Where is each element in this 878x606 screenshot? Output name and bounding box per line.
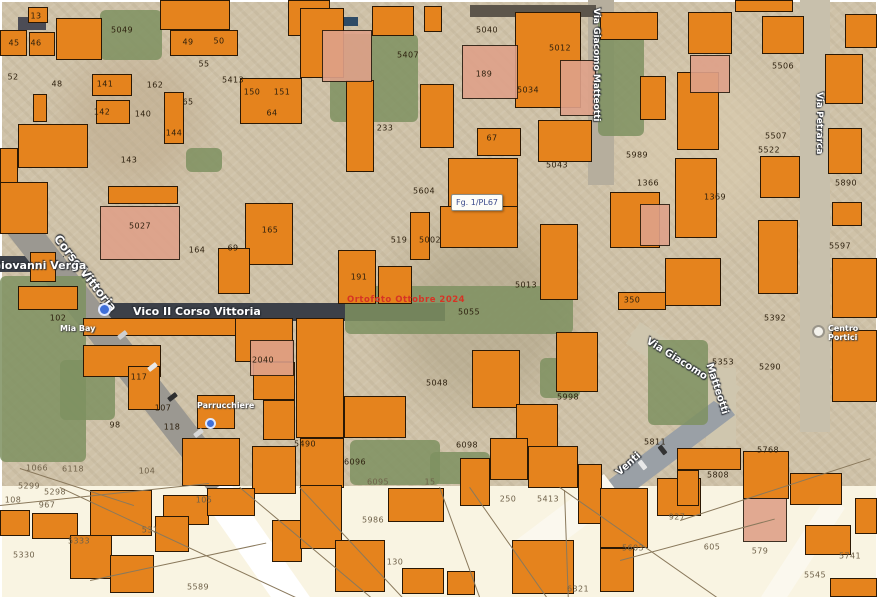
parcel-number: 52 xyxy=(8,73,19,82)
parcel-number: 519 xyxy=(391,236,407,245)
street-name-label: Via Giacomo Matteotti xyxy=(591,8,601,121)
building-parcel-secondary[interactable] xyxy=(100,206,180,260)
parcel-number: 64 xyxy=(267,109,278,118)
parcel-number: 105 xyxy=(196,496,212,505)
building-parcel[interactable] xyxy=(372,6,414,36)
parcel-number: 142 xyxy=(94,108,110,117)
parcel-number: 5506 xyxy=(772,62,794,71)
parcel-number: 141 xyxy=(97,80,113,89)
building-parcel[interactable] xyxy=(0,510,30,536)
vegetation-patch xyxy=(100,10,162,60)
building-parcel[interactable] xyxy=(512,540,574,594)
parcel-number: 144 xyxy=(166,129,182,138)
building-parcel[interactable] xyxy=(420,84,454,148)
parcel-number: 6118 xyxy=(62,465,84,474)
building-parcel[interactable] xyxy=(540,224,578,300)
parcel-number: 130 xyxy=(387,558,403,567)
parcel-number: 5392 xyxy=(764,314,786,323)
parcel-number: 350 xyxy=(624,296,640,305)
building-parcel[interactable] xyxy=(424,6,442,32)
building-parcel[interactable] xyxy=(825,54,863,104)
building-parcel[interactable] xyxy=(160,0,230,30)
parcel-number: 5012 xyxy=(549,44,571,53)
building-parcel[interactable] xyxy=(832,202,862,226)
parcel-number: 5490 xyxy=(294,440,316,449)
parcel-number: 5055 xyxy=(458,308,480,317)
parcel-number: 1369 xyxy=(704,193,726,202)
parcel-number: 15 xyxy=(425,478,436,487)
parcel-number: 531 xyxy=(142,526,158,535)
building-parcel[interactable] xyxy=(344,396,406,438)
parcel-number: 117 xyxy=(131,373,147,382)
parcel-number: 5597 xyxy=(829,242,851,251)
building-parcel[interactable] xyxy=(263,400,295,440)
parcel-number: 191 xyxy=(351,273,367,282)
parcel-number: 65 xyxy=(183,98,194,107)
ortofoto-watermark: Ortofoto Ottobre 2024 xyxy=(347,295,465,305)
parcel-number: 5027 xyxy=(129,222,151,231)
parcel-number: 189 xyxy=(476,70,492,79)
building-parcel[interactable] xyxy=(182,438,240,486)
parcel-number: 162 xyxy=(147,81,163,90)
parcel-number: 6098 xyxy=(456,441,478,450)
cadastral-map-viewer: 1345465250494950555413150151644814116214… xyxy=(0,0,878,606)
building-parcel[interactable] xyxy=(828,128,862,174)
building-parcel[interactable] xyxy=(538,120,592,162)
building-parcel[interactable] xyxy=(832,258,877,318)
building-parcel[interactable] xyxy=(556,332,598,392)
parcel-number: 6096 xyxy=(344,458,366,467)
parcel-number: 102 xyxy=(50,314,66,323)
parcel-number: 5522 xyxy=(758,146,780,155)
parcel-number: 48 xyxy=(52,80,63,89)
parcel-number: 5589 xyxy=(187,583,209,592)
building-parcel[interactable] xyxy=(440,206,518,248)
parcel-number: 67 xyxy=(487,134,498,143)
parcel-number: 5049 xyxy=(111,26,133,35)
parcel-number: 98 xyxy=(110,421,121,430)
parcel-number: 5890 xyxy=(835,179,857,188)
parcel-number: 5604 xyxy=(413,187,435,196)
parcel-number: 165 xyxy=(262,226,278,235)
parcel-number: 140 xyxy=(135,110,151,119)
parcel-number: 5002 xyxy=(419,236,441,245)
parcel-number: 5043 xyxy=(546,161,568,170)
parcel-number: 5989 xyxy=(626,151,648,160)
parcel-number: 2040 xyxy=(252,356,274,365)
map-marker-icon[interactable] xyxy=(98,303,111,316)
parcel-number: 150 xyxy=(244,88,260,97)
building-parcel[interactable] xyxy=(600,488,648,548)
building-parcel[interactable] xyxy=(18,124,88,168)
parcel-number: 69 xyxy=(228,244,239,253)
parcel-number: 5298 xyxy=(44,488,66,497)
parcel-number: 6321 xyxy=(567,585,589,594)
parcel-number: 50 xyxy=(214,37,225,46)
sheet-reference-label: Fg. 1/PL67 xyxy=(451,194,503,211)
building-parcel[interactable] xyxy=(207,488,255,516)
building-parcel[interactable] xyxy=(758,220,798,294)
parcel-number: 5013 xyxy=(515,281,537,290)
parcel-number: 151 xyxy=(274,88,290,97)
parcel-number: 5998 xyxy=(557,393,579,402)
parcel-number: 233 xyxy=(377,124,393,133)
building-parcel[interactable] xyxy=(460,458,490,506)
parcel-number: 108 xyxy=(5,496,21,505)
vegetation-patch xyxy=(186,148,222,172)
parcel-number: 5407 xyxy=(397,51,419,60)
parcel-number: 5040 xyxy=(476,26,498,35)
building-parcel[interactable] xyxy=(346,80,374,172)
building-parcel[interactable] xyxy=(472,350,520,408)
poi-label[interactable]: Mia Bay xyxy=(60,324,95,333)
building-parcel[interactable] xyxy=(108,186,178,204)
building-parcel[interactable] xyxy=(665,258,721,306)
parcel-number: 6095 xyxy=(367,478,389,487)
building-parcel[interactable] xyxy=(477,128,521,156)
building-parcel[interactable] xyxy=(18,286,78,310)
building-parcel[interactable] xyxy=(735,0,793,12)
building-parcel[interactable] xyxy=(388,488,444,522)
parcel-number: 13 xyxy=(31,12,42,21)
building-parcel[interactable] xyxy=(677,470,699,506)
parcel-number: 107 xyxy=(155,404,171,413)
parcel-number: 164 xyxy=(189,246,205,255)
parcel-number: 5333 xyxy=(68,537,90,546)
parcel-number: 5034 xyxy=(517,86,539,95)
building-parcel[interactable] xyxy=(640,76,666,120)
parcel-number: 118 xyxy=(164,423,180,432)
poi-circle-label: CentroPortici xyxy=(828,324,858,342)
parcel-number: 5603 xyxy=(622,544,644,553)
building-parcel[interactable] xyxy=(296,318,344,438)
parcel-number: 143 xyxy=(121,156,137,165)
building-parcel[interactable] xyxy=(790,473,842,505)
building-parcel[interactable] xyxy=(402,568,444,594)
building-parcel[interactable] xyxy=(677,448,741,470)
parcel-number: 5413 xyxy=(537,495,559,504)
building-parcel-secondary[interactable] xyxy=(322,30,372,82)
building-parcel[interactable] xyxy=(83,318,251,336)
parcel-number: 927 xyxy=(669,513,685,522)
building-parcel[interactable] xyxy=(528,446,578,488)
parcel-number: 49 xyxy=(183,38,194,47)
parcel-number: 5330 xyxy=(13,551,35,560)
parcel-number: 5986 xyxy=(362,516,384,525)
building-parcel[interactable] xyxy=(252,446,296,494)
building-parcel[interactable] xyxy=(335,540,385,592)
building-parcel[interactable] xyxy=(855,498,877,534)
building-parcel[interactable] xyxy=(688,12,732,54)
street-name-label: Vico II Corso Vittoria xyxy=(133,305,261,318)
building-parcel[interactable] xyxy=(762,16,804,54)
parcel-number: 5290 xyxy=(759,363,781,372)
parcel-number: 1366 xyxy=(637,179,659,188)
parcel-number: 5048 xyxy=(426,379,448,388)
building-parcel-secondary[interactable] xyxy=(640,204,670,246)
parcel-number: 104 xyxy=(139,467,155,476)
building-parcel[interactable] xyxy=(0,182,48,234)
building-parcel-secondary[interactable] xyxy=(690,55,730,93)
parcel-number: 5741 xyxy=(839,552,861,561)
parcel-number: 5811 xyxy=(644,438,666,447)
map-marker-icon[interactable] xyxy=(205,418,216,429)
parcel-number: 55 xyxy=(199,60,210,69)
building-parcel[interactable] xyxy=(760,156,800,198)
parcel-number: 1066 xyxy=(26,464,48,473)
building-parcel[interactable] xyxy=(490,438,528,480)
building-parcel[interactable] xyxy=(218,248,250,294)
building-parcel[interactable] xyxy=(845,14,877,48)
building-parcel[interactable] xyxy=(56,18,102,60)
building-parcel[interactable] xyxy=(600,548,634,592)
parcel-number: 5545 xyxy=(804,571,826,580)
sheet-reference-text: Fg. 1/PL67 xyxy=(456,198,498,207)
street-name-label: Giovanni Verga xyxy=(0,259,86,272)
street-name-label: Via Petrarca xyxy=(814,92,824,154)
parcel-number: 5299 xyxy=(18,482,40,491)
parcel-number: 250 xyxy=(500,495,516,504)
parcel-number: 605 xyxy=(704,543,720,552)
frame-bottom xyxy=(0,597,878,606)
poi-circle-icon[interactable] xyxy=(812,325,825,338)
parcel-number: 5413 xyxy=(222,76,244,85)
parcel-number: 5768 xyxy=(757,446,779,455)
parcel-number: 579 xyxy=(752,547,768,556)
parcel-number: 5507 xyxy=(765,132,787,141)
parcel-number: 5808 xyxy=(707,471,729,480)
parcel-number: 45 xyxy=(9,39,20,48)
building-parcel[interactable] xyxy=(805,525,851,555)
poi-label[interactable]: Parrucchiere xyxy=(197,401,254,410)
building-parcel[interactable] xyxy=(33,94,47,122)
building-parcel[interactable] xyxy=(600,12,658,40)
parcel-number: 967 xyxy=(39,501,55,510)
parcel-number: 46 xyxy=(31,39,42,48)
building-parcel[interactable] xyxy=(170,30,238,56)
building-parcel[interactable] xyxy=(830,578,877,597)
